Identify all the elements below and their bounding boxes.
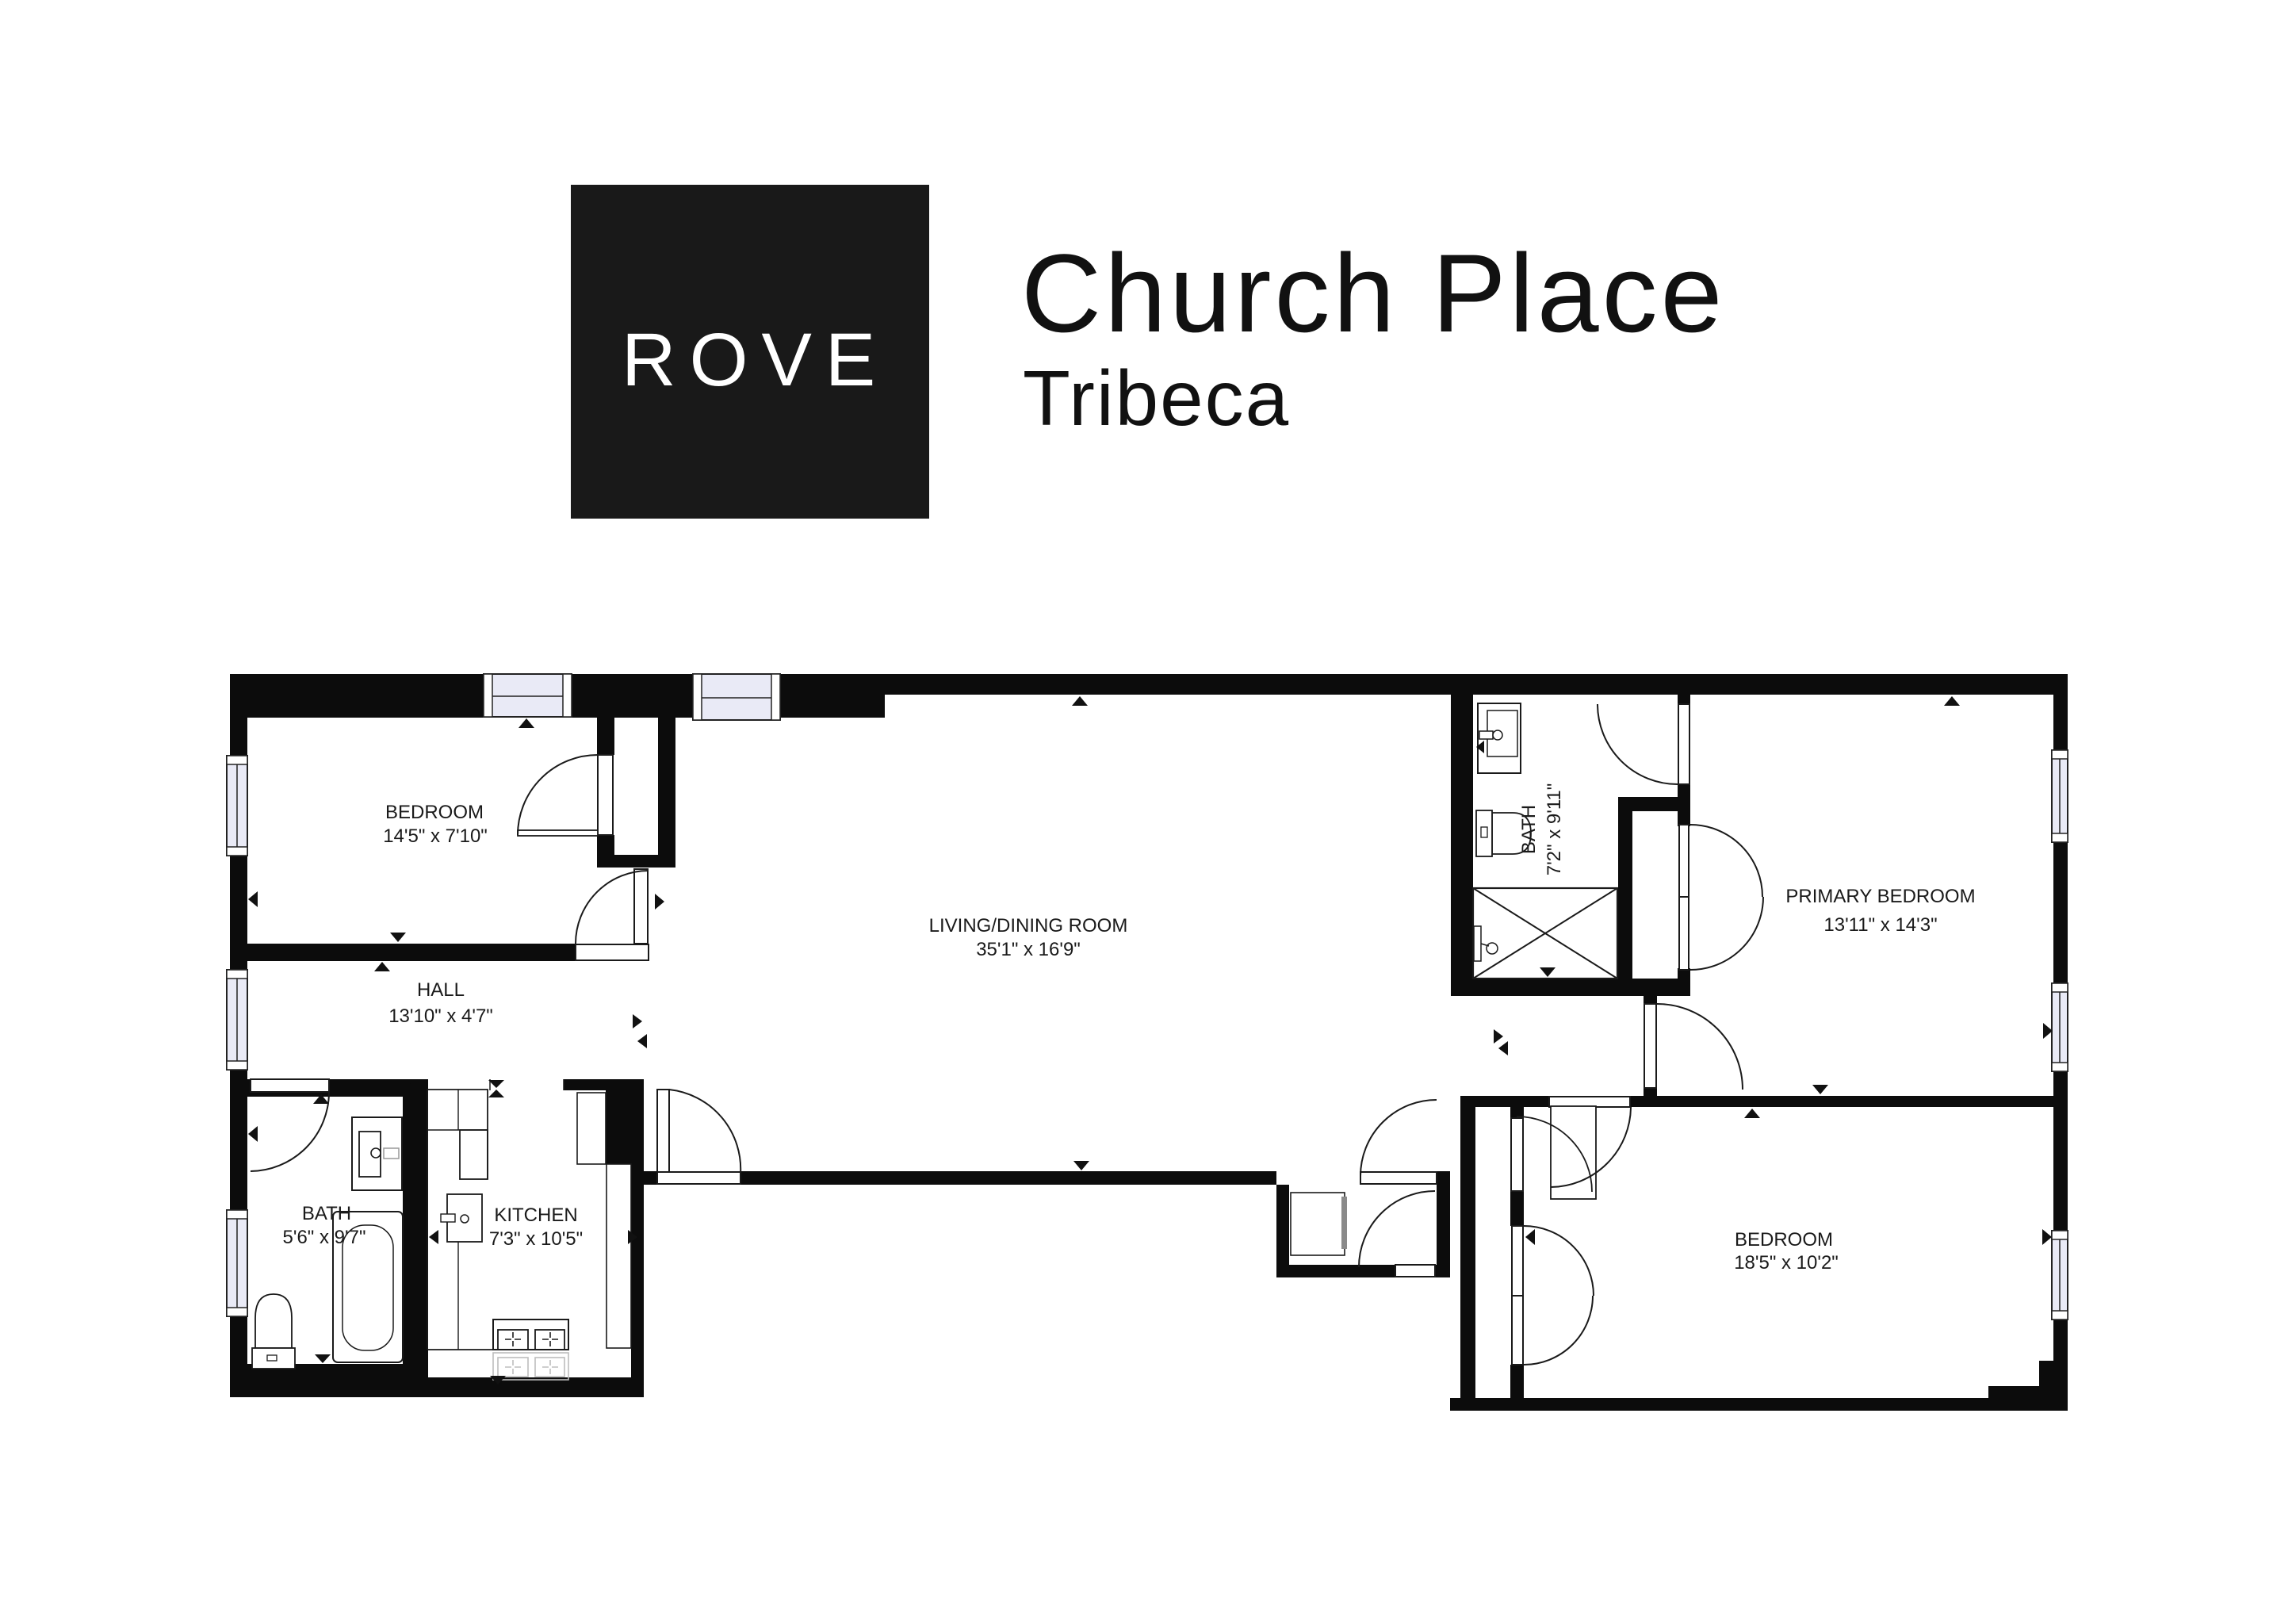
svg-text:13'11" x 14'3": 13'11" x 14'3" — [1823, 914, 1937, 936]
svg-text:18'5" x 10'2": 18'5" x 10'2" — [1734, 1252, 1839, 1274]
svg-text:ROVE: ROVE — [622, 318, 889, 402]
svg-text:35'1" x 16'9": 35'1" x 16'9" — [976, 939, 1081, 960]
svg-text:BATH: BATH — [1518, 805, 1540, 854]
svg-text:13'10" x 4'7": 13'10" x 4'7" — [388, 1005, 493, 1027]
svg-text:KITCHEN: KITCHEN — [494, 1205, 577, 1226]
svg-text:Tribeca: Tribeca — [1023, 354, 1290, 442]
svg-text:HALL: HALL — [417, 979, 465, 1001]
svg-text:7'3" x 10'5": 7'3" x 10'5" — [489, 1228, 583, 1250]
svg-text:BEDROOM: BEDROOM — [385, 802, 484, 823]
svg-text:LIVING/DINING ROOM: LIVING/DINING ROOM — [929, 915, 1128, 936]
svg-text:7'2" x 9'11": 7'2" x 9'11" — [1544, 783, 1565, 876]
svg-text:PRIMARY BEDROOM: PRIMARY BEDROOM — [1785, 886, 1975, 907]
svg-text:BATH: BATH — [302, 1203, 351, 1224]
svg-text:Church Place: Church Place — [1021, 231, 1725, 355]
svg-text:5'6" x 9'7": 5'6" x 9'7" — [283, 1227, 366, 1248]
svg-text:BEDROOM: BEDROOM — [1735, 1229, 1833, 1251]
svg-text:14'5" x 7'10": 14'5" x 7'10" — [383, 825, 488, 847]
